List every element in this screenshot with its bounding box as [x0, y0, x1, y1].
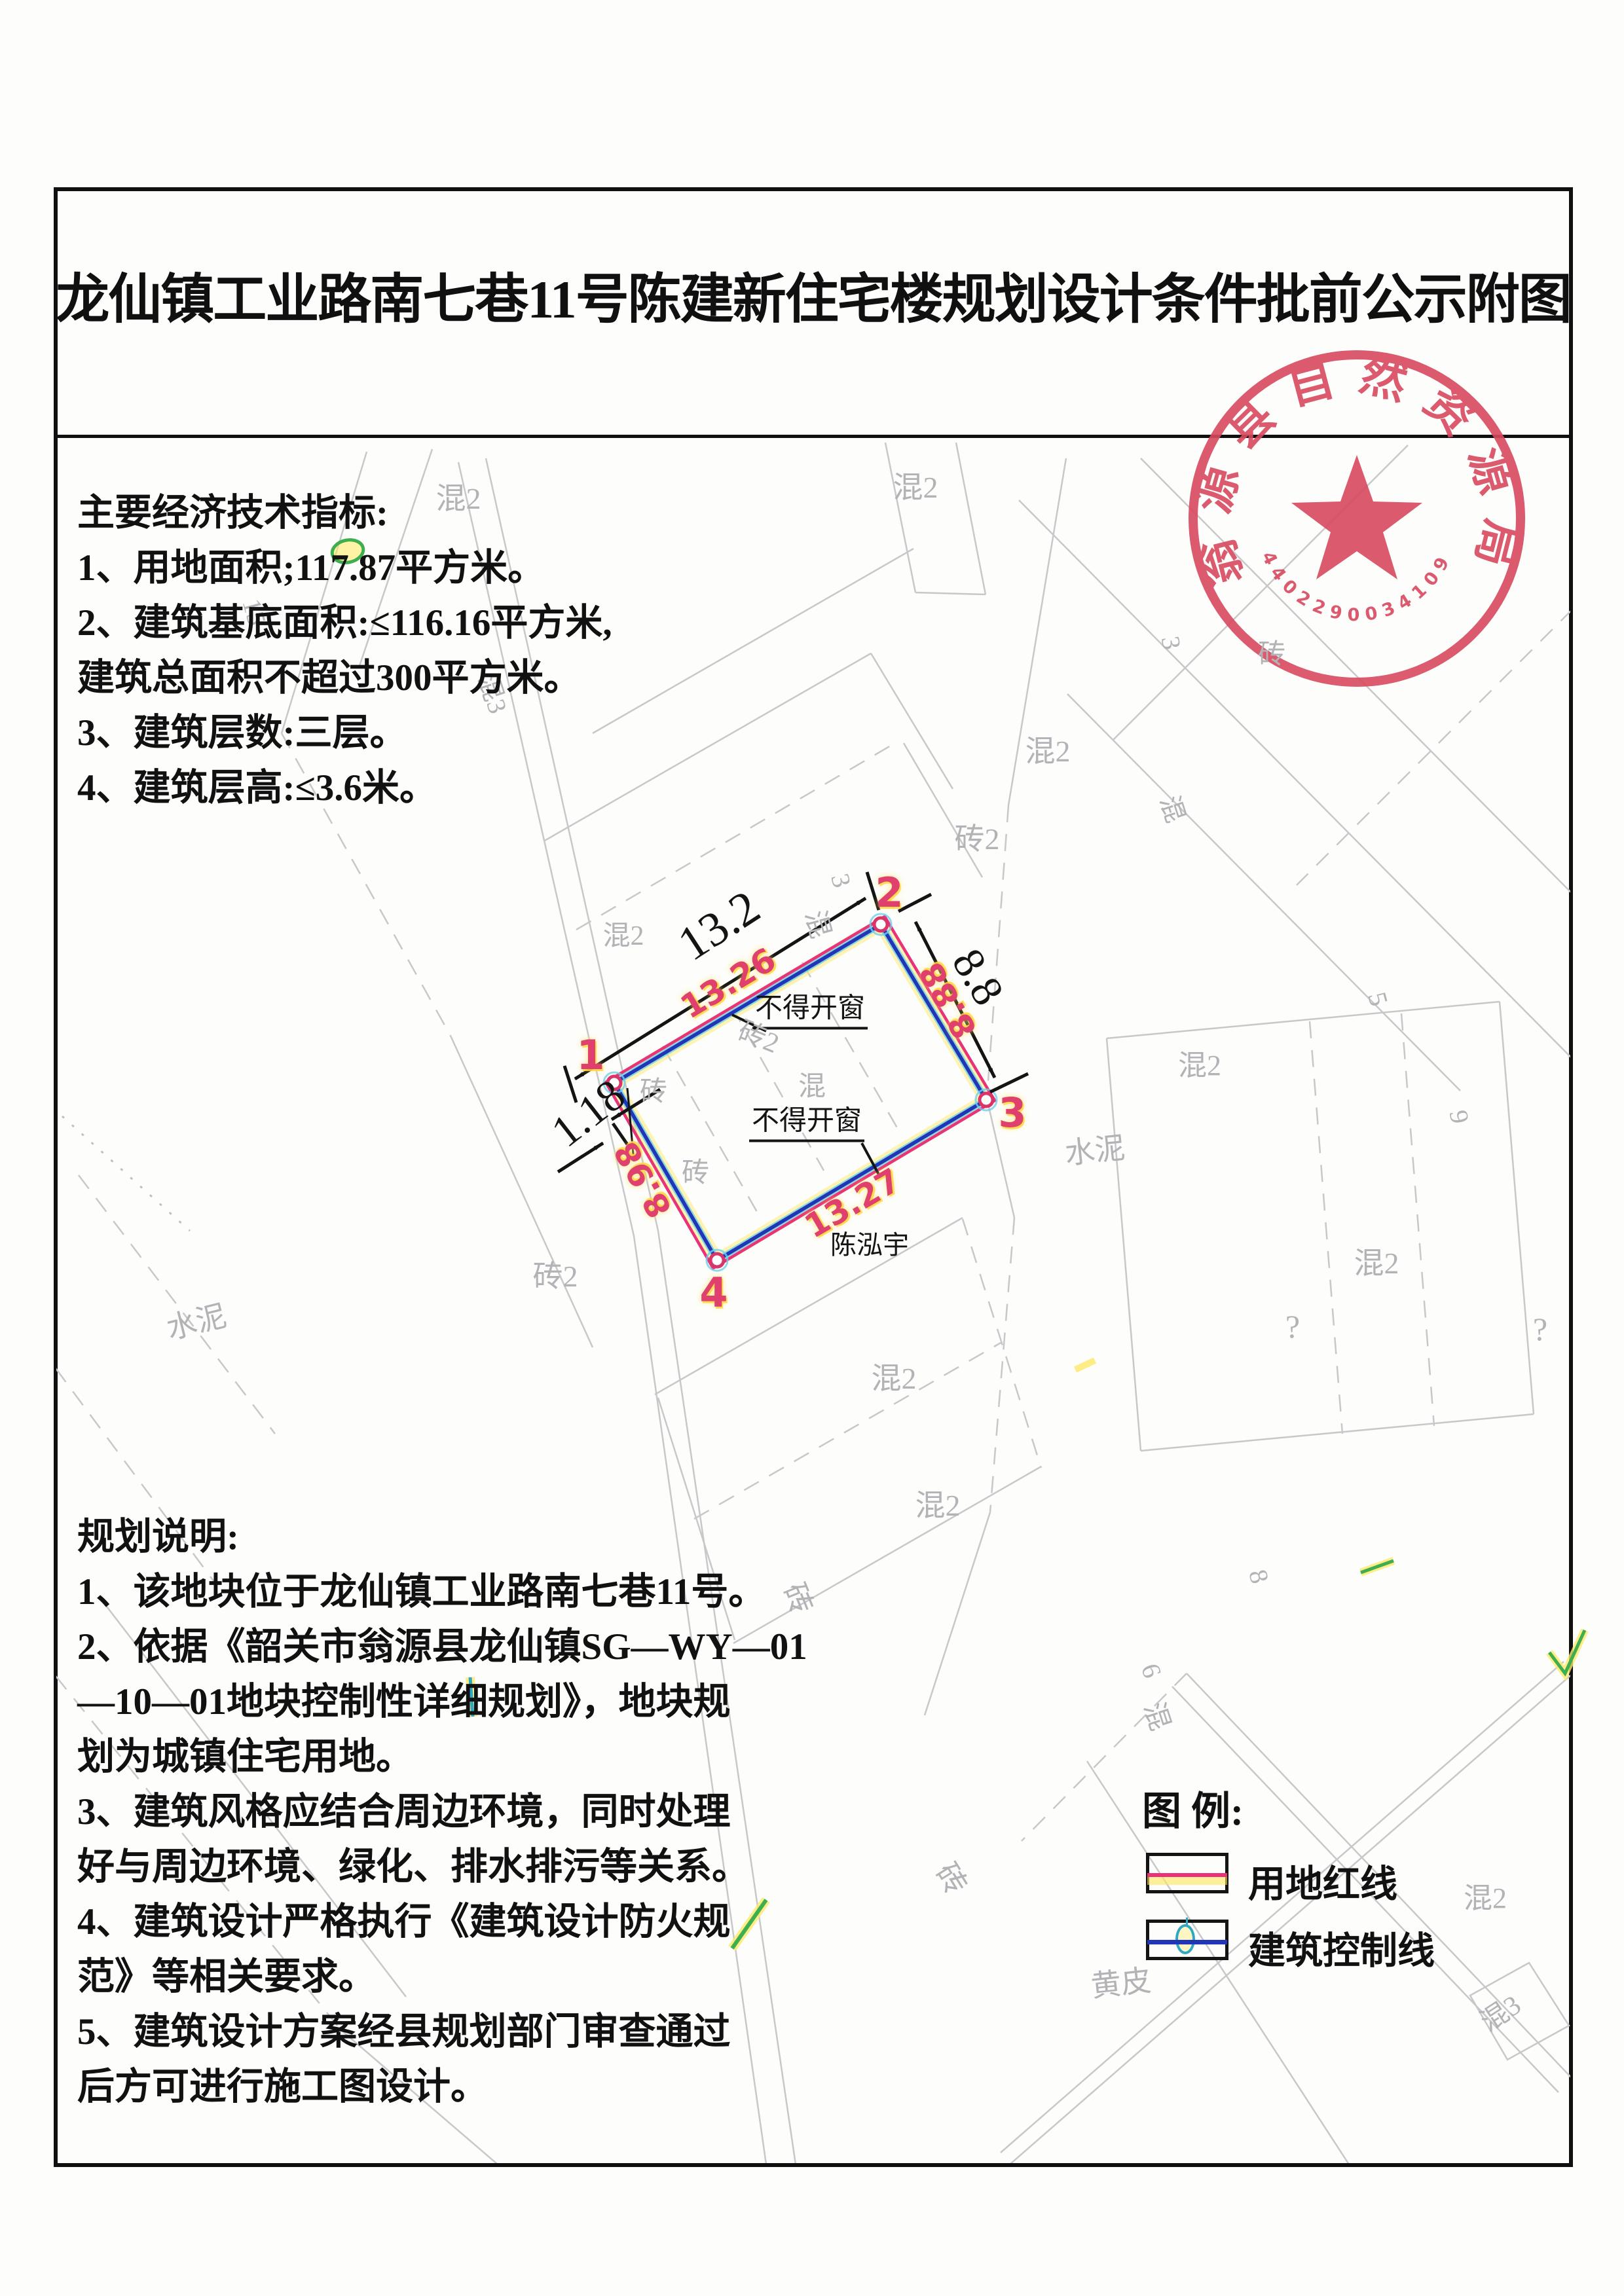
official-seal: 翁源县自然资源局 4402290034109: [1187, 349, 1526, 682]
indicator-line: 建筑总面积不超过300平方米。: [77, 651, 612, 706]
planning-line: 划为城镇住宅用地。: [77, 1730, 807, 1785]
dimension-lines: [558, 872, 1028, 1175]
planning-line: 3、建筑风格应结合周边环境，同时处理: [77, 1785, 807, 1840]
planning-line: 2、依据《韶关市翁源县龙仙镇SG—WY—01: [77, 1620, 807, 1675]
economic-indicators-block: 主要经济技术指标:1、用地面积;117.87平方米。2、建筑基底面积:≤116.…: [77, 486, 612, 816]
indicator-line: 2、建筑基底面积:≤116.16平方米,: [77, 596, 612, 651]
indicator-line: 主要经济技术指标:: [77, 486, 612, 541]
seal-serial-number: 4402290034109: [1257, 549, 1456, 625]
planning-line: 后方可进行施工图设计。: [77, 2060, 807, 2115]
dim-line-13-2: [575, 898, 866, 1079]
indicator-line: 3、建筑层数:三层。: [77, 706, 612, 761]
planning-line: 好与周边环境、绿化、排水排污等关系。: [77, 1840, 807, 1895]
planning-line: 1、该地块位于龙仙镇工业路南七巷11号。: [77, 1565, 807, 1620]
corner-marker: [710, 1254, 724, 1267]
no-window-leader-top: [732, 1015, 766, 1031]
indicator-line: 1、用地面积;117.87平方米。: [77, 541, 612, 596]
planning-line: 5、建筑设计方案经县规划部门审查通过: [77, 2005, 807, 2060]
blue-line-sample: [1147, 1940, 1227, 1944]
red-line-glow: [1147, 1877, 1227, 1885]
planning-line: 范》等相关要求。: [77, 1950, 807, 2005]
red-line-sample: [1147, 1873, 1227, 1877]
dim-arrow-1-18-b: [558, 1143, 603, 1172]
seal-star-icon: [1291, 455, 1422, 579]
corner-marker: [874, 918, 887, 931]
indicator-line: 4、建筑层高:≤3.6米。: [77, 761, 612, 816]
corner-marker: [608, 1076, 621, 1089]
legend-label-building-control-line: 建筑控制线: [1248, 1921, 1435, 1975]
planning-notes-block: 规划说明:1、该地块位于龙仙镇工业路南七巷11号。2、依据《韶关市翁源县龙仙镇S…: [77, 1510, 807, 2115]
legend-label-land-red-line: 用地红线: [1248, 1854, 1397, 1908]
planning-line: 规划说明:: [77, 1510, 807, 1565]
legend-title: 图 例:: [1142, 1779, 1244, 1836]
planning-line: —10—01地块控制性详细规划》，地块规: [77, 1675, 807, 1730]
blue-circle-sample: [1175, 1924, 1195, 1954]
page-title: 龙仙镇工业路南七巷11号陈建新住宅楼规划设计条件批前公示附图: [54, 255, 1573, 333]
planning-line: 4、建筑设计严格执行《建筑设计防火规: [77, 1895, 807, 1950]
svg-text:4402290034109: 4402290034109: [1257, 549, 1456, 625]
legend-swatch-building-control-line: [1146, 1920, 1228, 1960]
corner-marker: [980, 1093, 993, 1106]
legend-swatch-land-red-line: [1146, 1853, 1228, 1893]
